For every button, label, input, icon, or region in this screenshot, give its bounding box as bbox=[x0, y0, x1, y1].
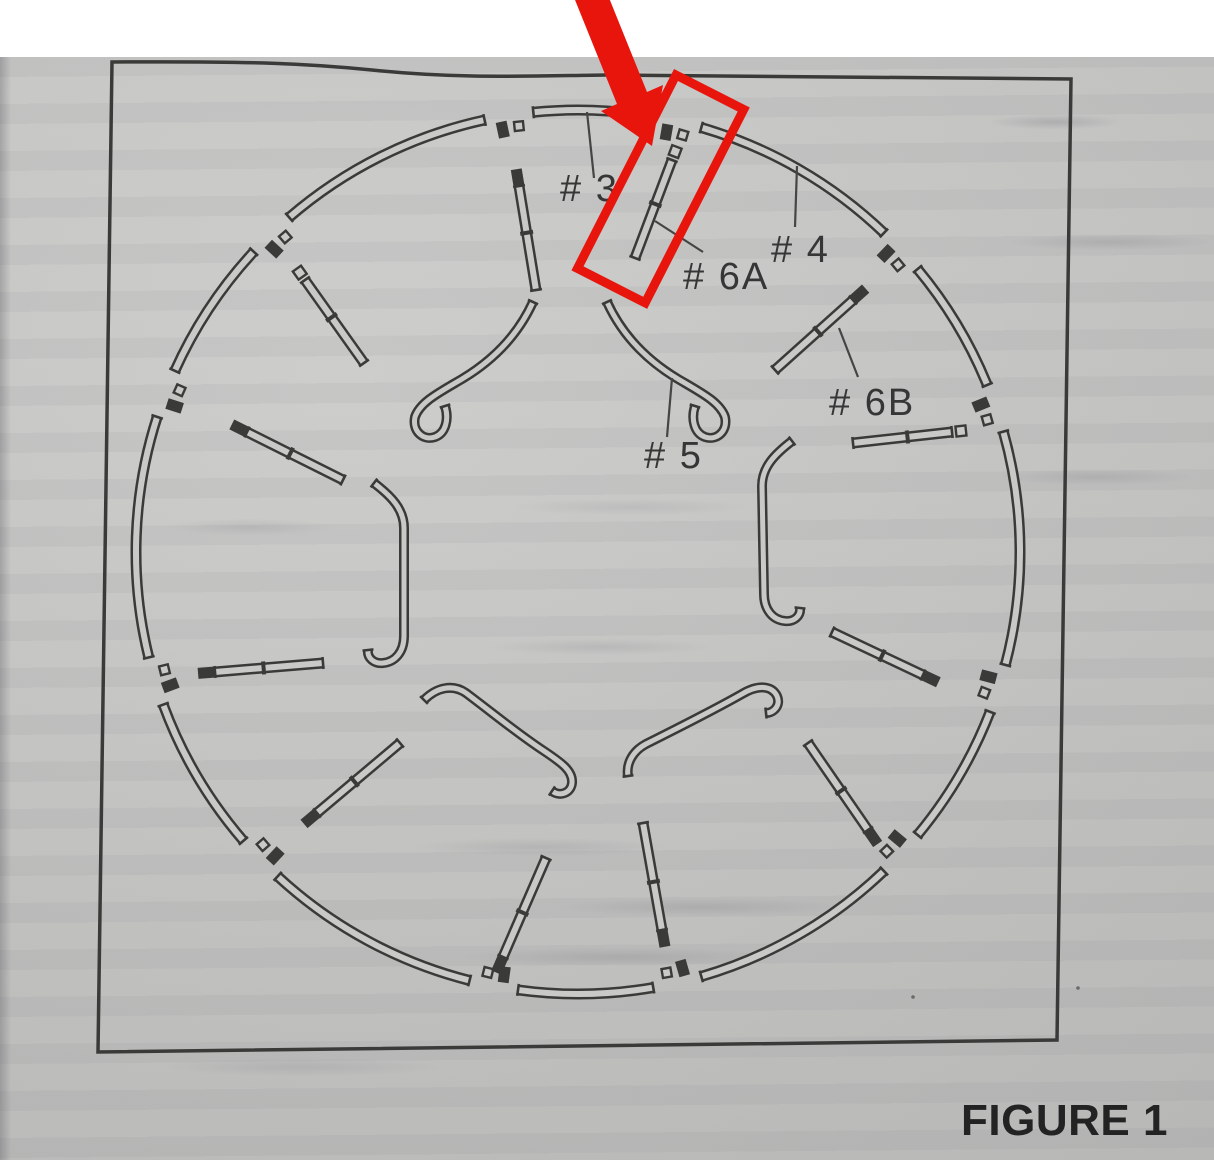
ring-joint-notch bbox=[257, 838, 270, 851]
rod-end-tab bbox=[198, 667, 215, 679]
part-label-5: # 5 bbox=[644, 435, 703, 477]
scanned-manual-page: # 3# 4# 5# 6A# 6B FIGURE 1 bbox=[0, 0, 1214, 1160]
ring-joint-notch bbox=[880, 845, 893, 858]
ring-segment-core bbox=[278, 876, 470, 980]
paper-speck bbox=[911, 995, 915, 999]
ring-joint-tab bbox=[971, 396, 990, 412]
figure-frame bbox=[98, 62, 1071, 1052]
ring-joint-tab bbox=[496, 121, 510, 139]
ring-joint-notch bbox=[979, 687, 991, 699]
ring-joint-tab bbox=[165, 398, 184, 413]
figure-caption: FIGURE 1 bbox=[961, 1096, 1201, 1146]
part-label-4: # 4 bbox=[771, 229, 830, 271]
ring-segment bbox=[289, 120, 484, 217]
rod-joint-tick bbox=[520, 232, 533, 234]
frame-rod-core bbox=[503, 858, 546, 957]
figure-diagram: # 3# 4# 5# 6A# 6B bbox=[0, 0, 1214, 1160]
part-label-6B: # 6B bbox=[829, 382, 915, 424]
hook-piece bbox=[424, 688, 572, 794]
hook-piece-core bbox=[607, 302, 725, 438]
rod-end-notch bbox=[293, 266, 307, 280]
hook-cap bbox=[765, 708, 766, 719]
ring-joint-tab bbox=[265, 240, 284, 259]
ring-segment-core bbox=[701, 871, 884, 976]
hook-piece-core bbox=[415, 302, 533, 438]
hook-piece-core bbox=[424, 688, 572, 794]
ring-joint-notch bbox=[482, 967, 493, 978]
ring-joint-tab bbox=[660, 123, 674, 141]
frame-rod-core bbox=[317, 743, 400, 813]
ring-joint-notch bbox=[174, 384, 186, 396]
ring-joint-tab bbox=[266, 846, 285, 865]
rod-cap bbox=[215, 666, 216, 678]
label-leader-line bbox=[795, 166, 797, 227]
ring-joint-notch bbox=[514, 121, 524, 131]
rod-cap bbox=[323, 657, 324, 669]
ring-segment-cap bbox=[533, 106, 534, 118]
rod-end-notch bbox=[669, 145, 682, 158]
ring-joint-notch bbox=[892, 258, 905, 271]
frame-rod-core bbox=[635, 160, 672, 258]
ring-joint-tab bbox=[979, 669, 997, 684]
ring-joint-notch bbox=[159, 664, 170, 675]
ring-segment bbox=[163, 705, 243, 841]
label-leader-line bbox=[839, 328, 858, 377]
frame-rod-core bbox=[305, 280, 364, 363]
hook-cap bbox=[363, 649, 374, 650]
frame-rod-core bbox=[519, 186, 536, 290]
rod-joint-tick bbox=[263, 661, 264, 674]
ring-joint-tab bbox=[675, 959, 690, 977]
frame-rod-core bbox=[808, 743, 868, 830]
part-label-6A: # 6A bbox=[683, 256, 769, 298]
frame-rod-core bbox=[832, 632, 923, 675]
label-leader-line bbox=[667, 378, 672, 437]
hook-cap bbox=[795, 607, 806, 608]
ring-joint-tab bbox=[161, 677, 180, 693]
ring-joint-notch bbox=[661, 968, 671, 978]
ring-joint-notch bbox=[279, 231, 292, 244]
frame-rod-core bbox=[247, 432, 343, 480]
ring-segment-core bbox=[918, 712, 991, 835]
rod-cap bbox=[852, 437, 853, 449]
ring-joint-tab bbox=[877, 244, 896, 263]
ring-joint-tab bbox=[888, 829, 907, 848]
red-arrow bbox=[571, 0, 663, 146]
rod-joint-tick bbox=[907, 430, 908, 443]
hook-piece-core bbox=[628, 687, 778, 776]
ring-joint-notch bbox=[677, 129, 688, 140]
rod-end-tab bbox=[511, 168, 524, 186]
hook-piece-core bbox=[368, 483, 404, 663]
hook-piece bbox=[628, 687, 778, 776]
ring-segment-cap bbox=[517, 984, 519, 996]
rod-joint-tick bbox=[647, 881, 660, 883]
ring-segment bbox=[278, 876, 470, 980]
frame-rod-core bbox=[643, 823, 662, 930]
ring-segment bbox=[701, 871, 884, 976]
ring-segment-core bbox=[289, 120, 484, 217]
ring-joint-notch bbox=[982, 414, 993, 425]
rod-cap bbox=[951, 426, 952, 438]
hook-cap bbox=[623, 775, 634, 777]
paper-speck bbox=[1076, 986, 1080, 990]
rod-end-tab bbox=[657, 930, 671, 948]
rod-end-notch bbox=[955, 425, 966, 436]
ring-segment-core bbox=[175, 252, 254, 371]
